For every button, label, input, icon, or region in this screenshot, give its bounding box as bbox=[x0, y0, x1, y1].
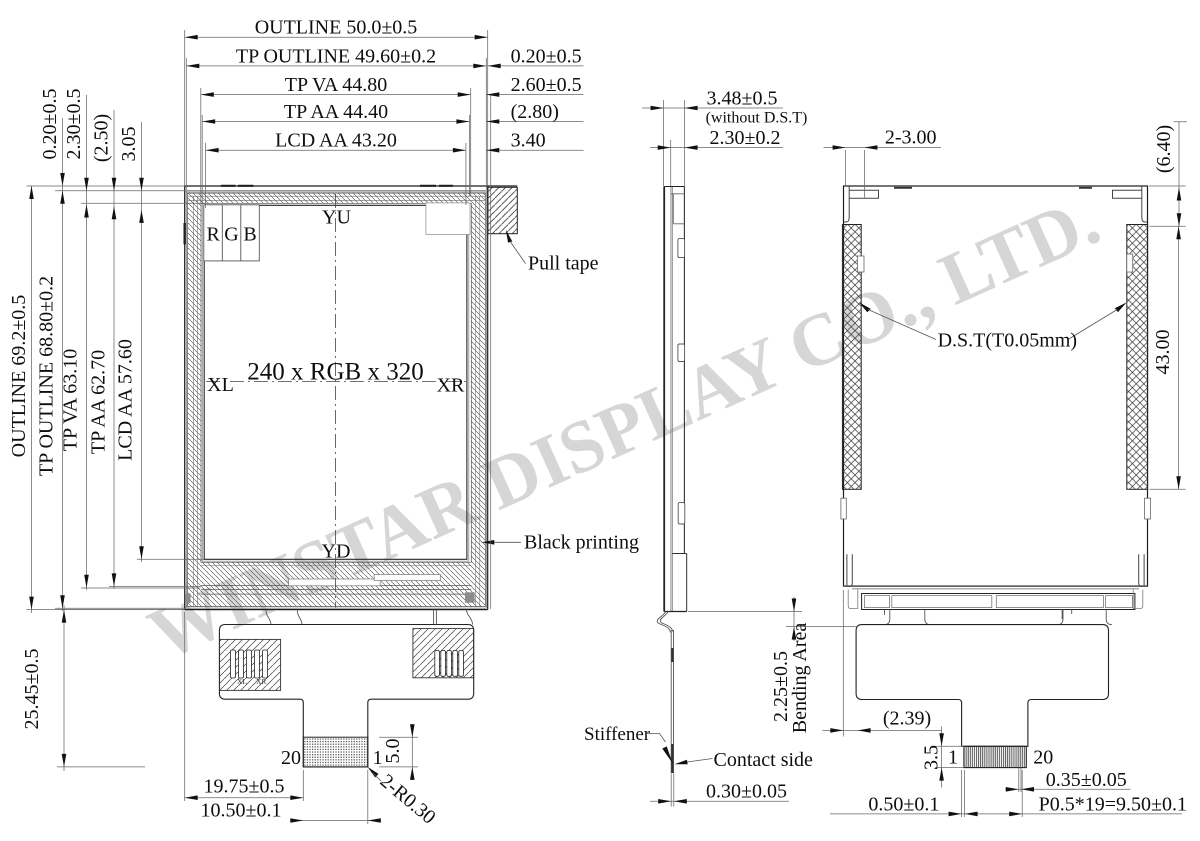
svg-text:D.S.T(T0.05mm): D.S.T(T0.05mm) bbox=[938, 330, 1077, 352]
svg-text:YD: YD bbox=[322, 541, 351, 563]
svg-text:Pull tape: Pull tape bbox=[528, 253, 599, 275]
svg-text:TP AA 44.40: TP AA 44.40 bbox=[284, 101, 388, 123]
svg-text:OUTLINE 50.0±0.5: OUTLINE 50.0±0.5 bbox=[255, 17, 418, 39]
svg-text:0.20±0.5: 0.20±0.5 bbox=[39, 89, 61, 160]
svg-text:5.0: 5.0 bbox=[382, 739, 404, 764]
svg-text:TP AA 62.70: TP AA 62.70 bbox=[88, 350, 110, 454]
svg-text:(2.39): (2.39) bbox=[883, 708, 931, 730]
svg-text:2.30±0.5: 2.30±0.5 bbox=[63, 89, 85, 160]
svg-text:TP OUTLINE 49.60±0.2: TP OUTLINE 49.60±0.2 bbox=[236, 45, 436, 67]
svg-text:XL: XL bbox=[207, 374, 234, 396]
svg-text:XR: XR bbox=[256, 677, 266, 686]
svg-text:TP VA 63.10: TP VA 63.10 bbox=[60, 349, 82, 451]
svg-text:Black printing: Black printing bbox=[524, 532, 639, 554]
svg-text:B: B bbox=[243, 224, 256, 246]
svg-text:Stiffener: Stiffener bbox=[584, 724, 651, 745]
svg-text:3.40: 3.40 bbox=[511, 130, 546, 152]
svg-text:G: G bbox=[224, 224, 238, 246]
svg-text:19.75±0.5: 19.75±0.5 bbox=[204, 776, 285, 798]
svg-text:25.45±0.5: 25.45±0.5 bbox=[21, 649, 43, 730]
svg-text:20: 20 bbox=[281, 747, 301, 769]
svg-text:R: R bbox=[207, 224, 221, 246]
svg-text:0.50±0.1: 0.50±0.1 bbox=[868, 793, 939, 815]
svg-text:(2.80): (2.80) bbox=[511, 101, 559, 123]
svg-text:2-3.00: 2-3.00 bbox=[885, 127, 937, 149]
svg-text:240 x RGB x 320: 240 x RGB x 320 bbox=[247, 359, 423, 386]
svg-text:LCD AA 43.20: LCD AA 43.20 bbox=[275, 130, 397, 152]
svg-text:LCD AA 57.60: LCD AA 57.60 bbox=[115, 339, 137, 461]
svg-text:2.60±0.5: 2.60±0.5 bbox=[511, 74, 582, 96]
svg-text:3.5: 3.5 bbox=[921, 745, 943, 770]
svg-text:43.00: 43.00 bbox=[1152, 330, 1174, 375]
svg-text:TP OUTLINE 68.80±0.2: TP OUTLINE 68.80±0.2 bbox=[36, 276, 58, 476]
svg-text:(without D.S.T): (without D.S.T) bbox=[706, 110, 808, 127]
svg-text:XL: XL bbox=[237, 677, 247, 686]
svg-text:(6.40): (6.40) bbox=[1153, 125, 1175, 173]
svg-text:Bending Area: Bending Area bbox=[789, 623, 811, 734]
svg-text:TP VA 44.80: TP VA 44.80 bbox=[285, 74, 387, 96]
svg-text:0.35±0.05: 0.35±0.05 bbox=[1046, 769, 1127, 791]
svg-text:0.20±0.5: 0.20±0.5 bbox=[511, 45, 582, 67]
svg-text:3.05: 3.05 bbox=[118, 127, 140, 162]
svg-text:1: 1 bbox=[948, 747, 958, 769]
svg-text:10.50±0.1: 10.50±0.1 bbox=[201, 800, 282, 822]
svg-text:3.48±0.5: 3.48±0.5 bbox=[707, 88, 778, 110]
svg-text:20: 20 bbox=[1033, 747, 1053, 769]
svg-text:XR: XR bbox=[437, 375, 465, 397]
svg-text:2.30±0.2: 2.30±0.2 bbox=[710, 127, 781, 149]
svg-text:YU: YU bbox=[322, 207, 351, 229]
svg-text:OUTLINE 69.2±0.5: OUTLINE 69.2±0.5 bbox=[8, 295, 30, 458]
svg-text:0.30±0.05: 0.30±0.05 bbox=[706, 781, 787, 803]
svg-text:(2.50): (2.50) bbox=[91, 114, 113, 162]
svg-text:Contact side: Contact side bbox=[714, 749, 814, 771]
svg-text:P0.5*19=9.50±0.1: P0.5*19=9.50±0.1 bbox=[1039, 793, 1187, 815]
